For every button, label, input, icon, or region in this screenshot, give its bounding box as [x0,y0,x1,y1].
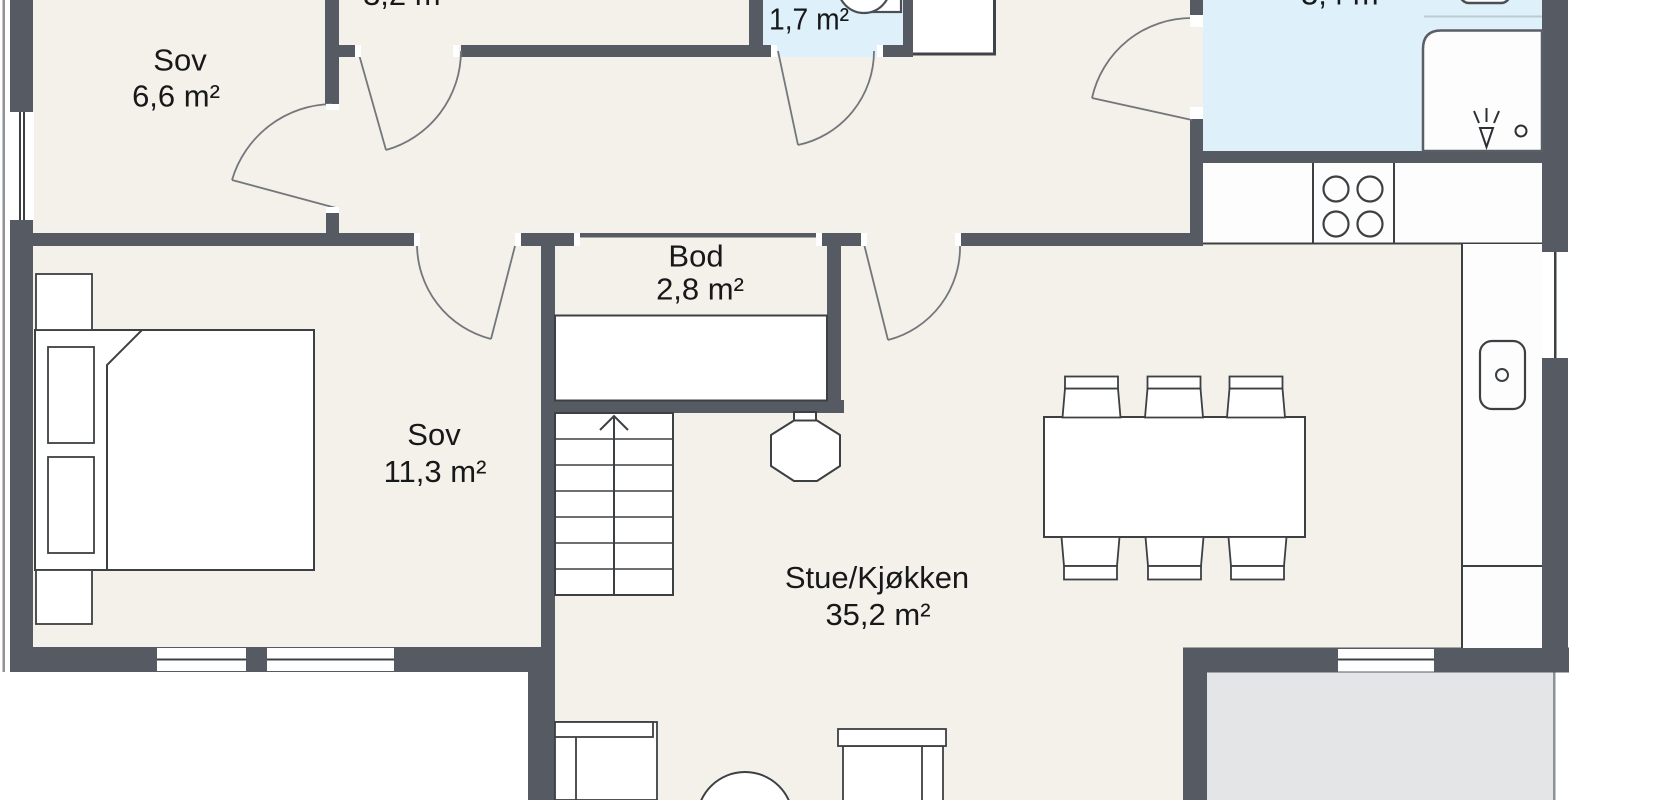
svg-text:Sov: Sov [407,417,461,452]
svg-text:Sov: Sov [153,43,207,78]
svg-text:5,4 m²: 5,4 m² [1301,0,1389,12]
svg-text:6,6 m²: 6,6 m² [132,79,220,114]
svg-text:Bod: Bod [668,239,723,274]
svg-text:35,2 m²: 35,2 m² [825,597,930,632]
svg-text:1,7 m²: 1,7 m² [769,2,849,37]
svg-text:3,2 m²: 3,2 m² [363,0,451,12]
svg-text:Stue/Kjøkken: Stue/Kjøkken [785,560,969,595]
svg-text:11,3 m²: 11,3 m² [384,454,487,489]
svg-text:2,8 m²: 2,8 m² [656,272,744,307]
